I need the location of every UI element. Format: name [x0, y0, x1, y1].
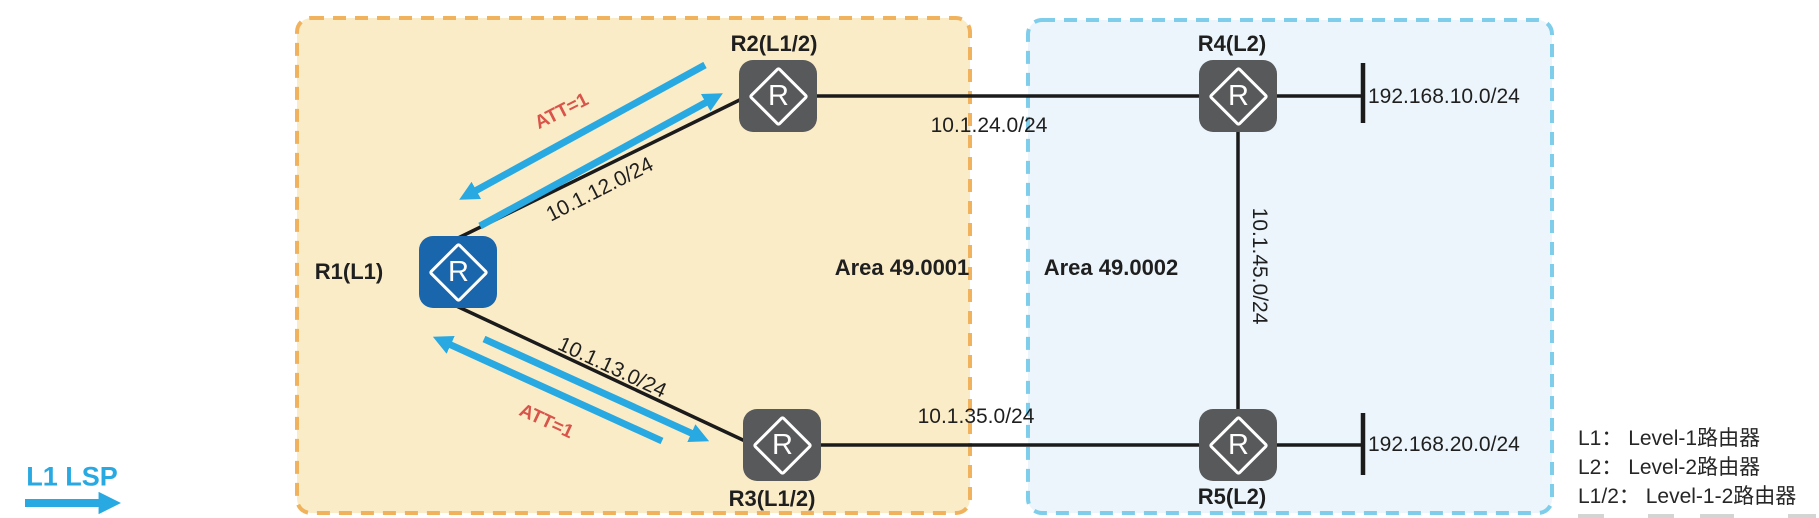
router-icon: R — [1208, 415, 1269, 476]
area-label-49-0002: Area 49.0002 — [1044, 255, 1179, 281]
bottom-crop-fragments — [1578, 514, 1816, 518]
link-label-r2-r4: 10.1.24.0/24 — [931, 114, 1048, 138]
router-icon: R — [752, 415, 813, 476]
node-label-r1: R1(L1) — [315, 259, 383, 285]
router-icon-letter: R — [768, 81, 789, 110]
router-r4: R — [1199, 60, 1277, 132]
router-icon-letter: R — [1228, 81, 1249, 110]
level-legend: L1： Level-1路由器 L2： Level-2路由器 L1/2： Leve… — [1578, 424, 1796, 511]
isis-topology-diagram: R R R R R R1(L1) R2(L1/2) R3(L1/2) R4(L2… — [0, 0, 1819, 518]
stub-label-r4: 192.168.10.0/24 — [1368, 85, 1520, 109]
node-label-r4: R4(L2) — [1198, 31, 1266, 57]
router-icon-letter: R — [448, 257, 469, 286]
legend-item-l1: L1： Level-1路由器 — [1578, 424, 1796, 453]
router-r3: R — [743, 409, 821, 481]
link-label-r3-r5: 10.1.35.0/24 — [918, 405, 1035, 429]
node-label-r2: R2(L1/2) — [731, 31, 818, 57]
router-icon-letter: R — [772, 430, 793, 459]
router-icon: R — [428, 242, 489, 303]
node-label-r3: R3(L1/2) — [729, 486, 816, 512]
node-label-r5: R5(L2) — [1198, 484, 1266, 510]
area-label-49-0001: Area 49.0001 — [835, 255, 970, 281]
lsp-legend-label: L1 LSP — [26, 462, 118, 493]
router-r1: R — [419, 236, 497, 308]
router-r5: R — [1199, 409, 1277, 481]
router-icon: R — [748, 66, 809, 127]
legend-item-l2: L2： Level-2路由器 — [1578, 453, 1796, 482]
stub-label-r5: 192.168.20.0/24 — [1368, 433, 1520, 457]
router-icon: R — [1208, 66, 1269, 127]
link-label-r4-r5: 10.1.45.0/24 — [1247, 208, 1271, 325]
router-r2: R — [739, 60, 817, 132]
router-icon-letter: R — [1228, 430, 1249, 459]
legend-item-l12: L1/2： Level-1-2路由器 — [1578, 482, 1796, 511]
